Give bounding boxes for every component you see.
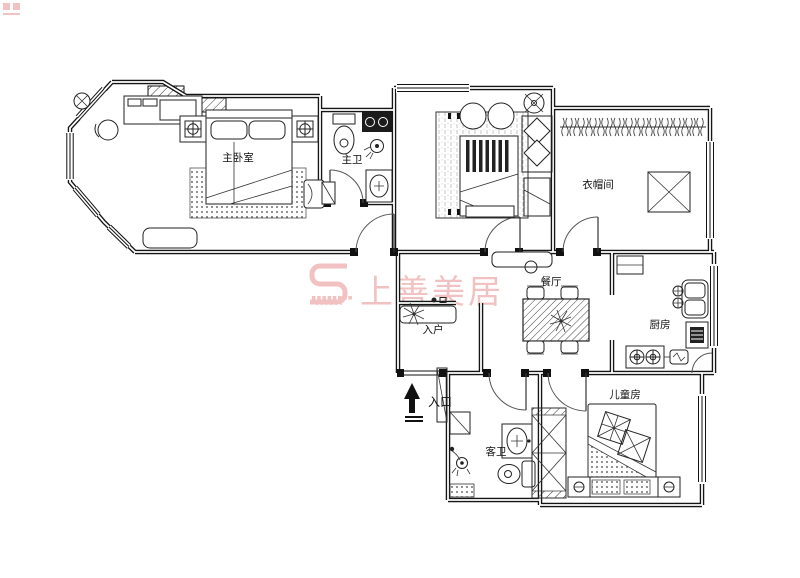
corner-watermark bbox=[3, 3, 20, 15]
label-entry-hall: 入户 bbox=[423, 323, 444, 336]
window-top bbox=[396, 83, 470, 93]
cloakroom-door bbox=[563, 217, 598, 252]
entrance-marker: 入口 bbox=[404, 383, 452, 421]
window-bay-lower bbox=[73, 186, 100, 216]
toilet-icon bbox=[498, 461, 535, 487]
laundry-basket bbox=[322, 182, 335, 204]
label-children-room: 儿童房 bbox=[609, 388, 641, 401]
dining-chair bbox=[527, 341, 544, 354]
stove-icon bbox=[626, 346, 688, 368]
window-bay-left bbox=[65, 132, 75, 180]
shower-icon bbox=[364, 140, 384, 160]
bedroom2-door bbox=[485, 217, 520, 252]
water-heater bbox=[686, 322, 708, 348]
sink-icon bbox=[366, 170, 392, 202]
room-bedroom2 bbox=[436, 93, 552, 218]
label-master-bath: 主卫 bbox=[342, 154, 363, 166]
label-cloakroom: 衣帽间 bbox=[582, 178, 614, 191]
nightstand-left bbox=[180, 116, 206, 142]
dining-chair bbox=[561, 286, 578, 299]
window-bay-lowest bbox=[107, 225, 131, 248]
guest-bath-door bbox=[489, 373, 526, 410]
bed-bench bbox=[466, 206, 514, 217]
washer-counter bbox=[362, 112, 392, 132]
room-dining: 餐厅 bbox=[492, 252, 589, 354]
room-guest-bath: 客卫 bbox=[450, 412, 535, 497]
ceiling-fan-icon bbox=[524, 93, 544, 113]
dining-chair bbox=[561, 341, 578, 354]
plant-icon bbox=[74, 93, 90, 109]
label-master-bedroom: 主卧室 bbox=[222, 151, 254, 164]
label-kitchen: 厨房 bbox=[650, 318, 671, 331]
label-entrance: 入口 bbox=[428, 395, 452, 409]
master-bedroom-door bbox=[356, 214, 394, 252]
room-master-bath: 主卫 bbox=[322, 112, 392, 204]
room-cloakroom: 衣帽间 bbox=[560, 118, 706, 212]
floor-plan-canvas: 上善美居 bbox=[0, 0, 800, 578]
pillow-ball-left bbox=[460, 103, 486, 129]
bed2 bbox=[460, 136, 518, 216]
tv-bench bbox=[143, 228, 197, 248]
storage-box bbox=[648, 172, 690, 212]
toilet-icon bbox=[333, 114, 355, 154]
label-guest-bath: 客卫 bbox=[486, 445, 507, 458]
hamper bbox=[450, 412, 470, 434]
kitchen-sink-icon bbox=[673, 280, 708, 318]
room-kitchen: 厨房 bbox=[617, 256, 708, 368]
kitchen-door-arc bbox=[692, 353, 712, 373]
sink-icon bbox=[502, 424, 532, 458]
floor-plan: 上善美居 bbox=[0, 0, 800, 578]
dining-table bbox=[523, 299, 589, 341]
window-cloakroom-east bbox=[704, 141, 716, 239]
desk-chair bbox=[95, 120, 118, 140]
wardrobe bbox=[532, 408, 566, 498]
sideboard bbox=[492, 252, 552, 273]
children-room-door bbox=[548, 373, 586, 411]
bath-mat bbox=[450, 484, 474, 497]
window-kitchen-east bbox=[708, 264, 720, 348]
children-bed bbox=[588, 404, 656, 478]
entrance-arrow-icon bbox=[404, 383, 420, 399]
pillow-ball-right bbox=[488, 103, 514, 129]
headboard bbox=[568, 477, 680, 497]
nightstand-right bbox=[292, 116, 318, 142]
armchair bbox=[304, 180, 324, 208]
shower-icon bbox=[450, 447, 470, 476]
label-dining: 餐厅 bbox=[541, 275, 562, 288]
window-children-east bbox=[696, 394, 708, 484]
room-children: 儿童房 bbox=[532, 388, 680, 498]
